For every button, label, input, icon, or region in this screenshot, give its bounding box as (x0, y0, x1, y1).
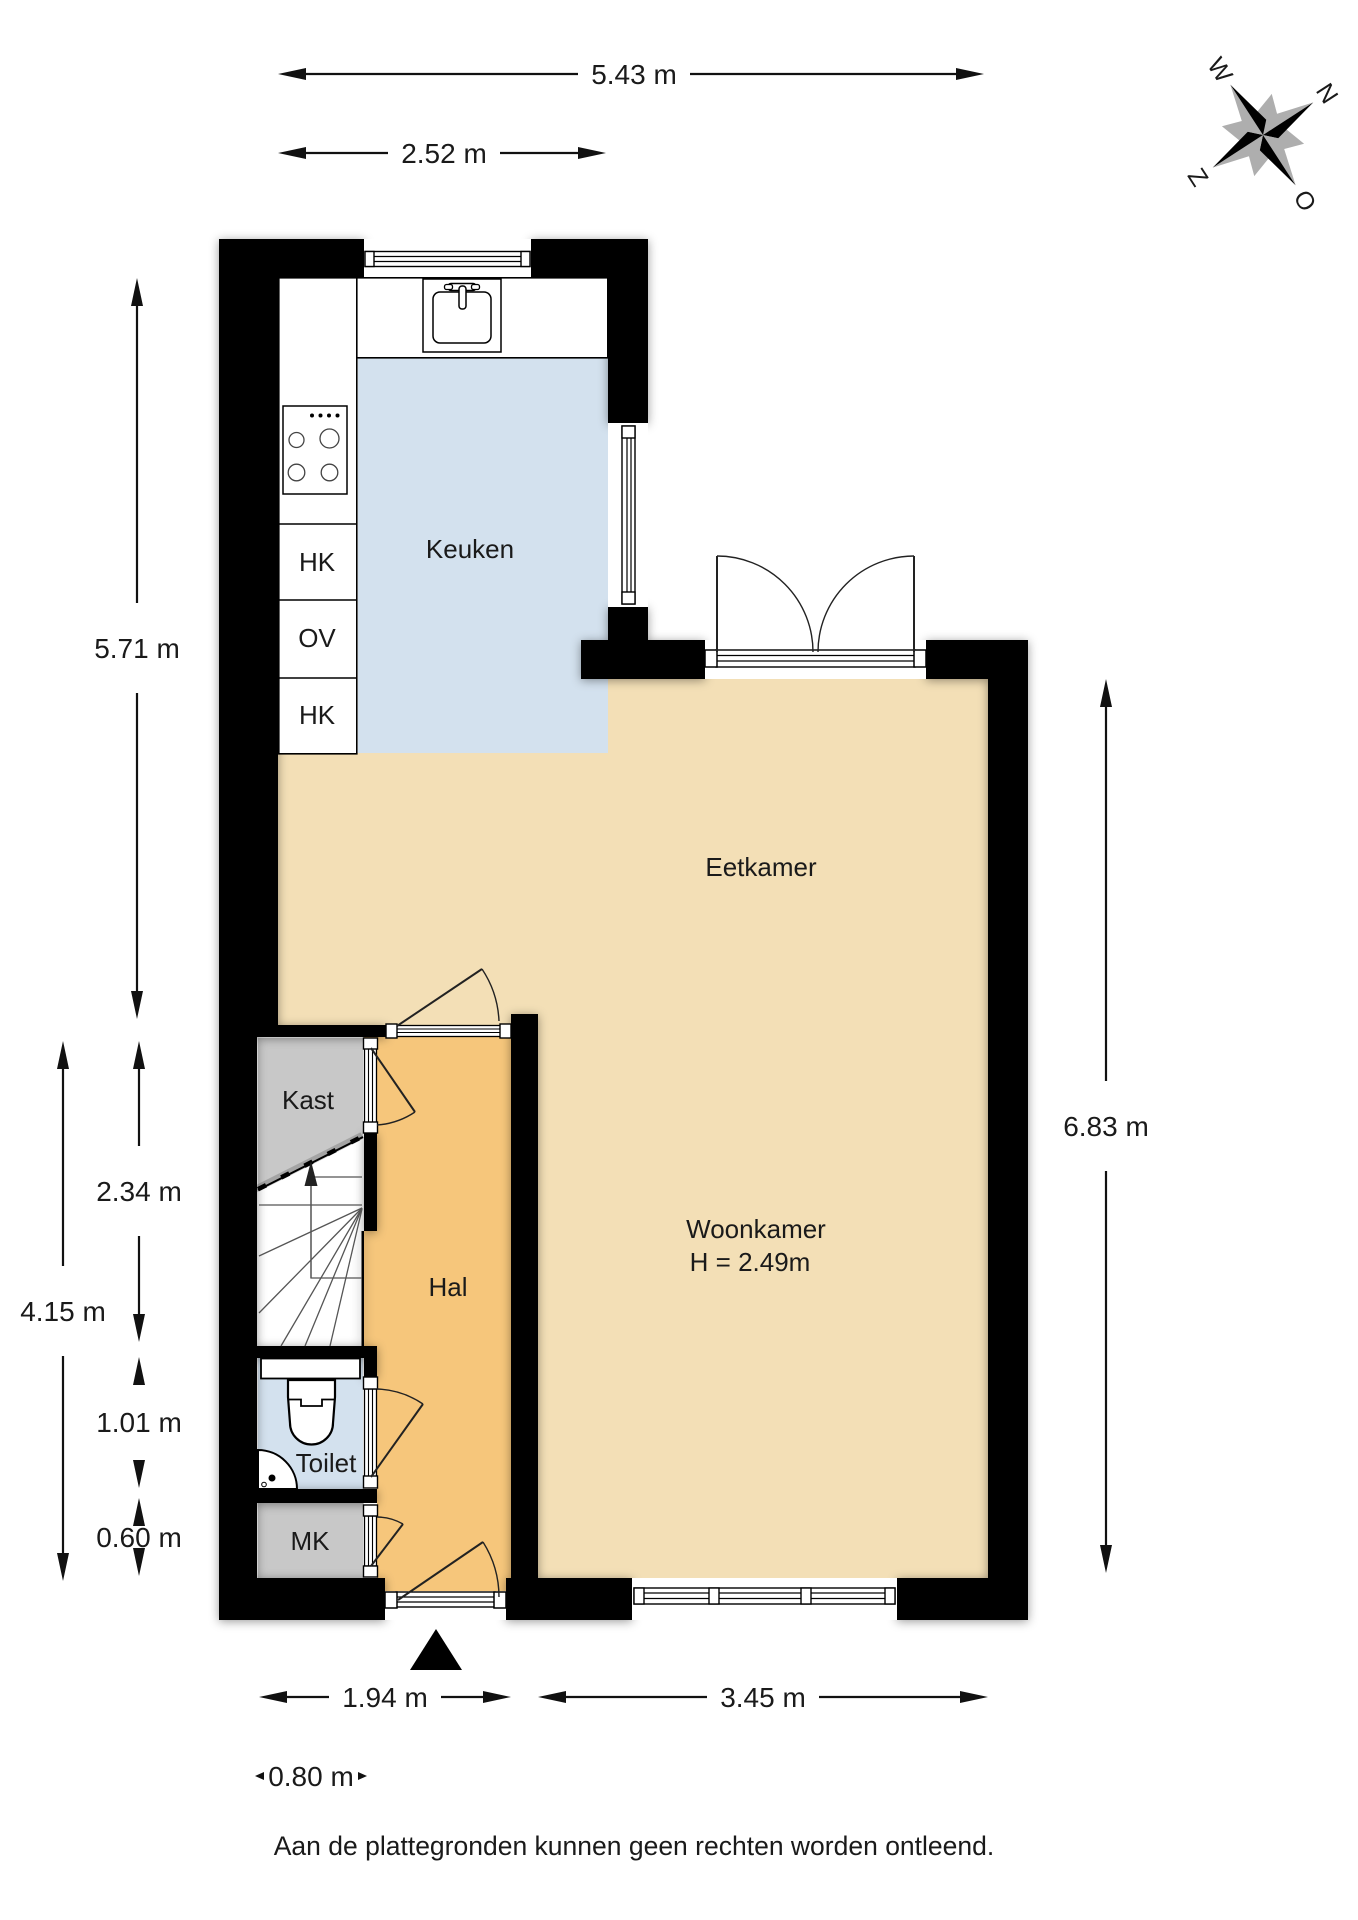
svg-text:Hal: Hal (428, 1272, 467, 1302)
svg-text:0.60 m: 0.60 m (96, 1522, 182, 1553)
svg-text:Toilet: Toilet (296, 1448, 357, 1478)
svg-text:6.83 m: 6.83 m (1063, 1111, 1149, 1142)
svg-text:Woonkamer: Woonkamer (686, 1214, 826, 1244)
svg-text:H = 2.49m: H = 2.49m (690, 1247, 811, 1277)
svg-text:3.45 m: 3.45 m (720, 1682, 806, 1713)
svg-text:Eetkamer: Eetkamer (705, 852, 817, 882)
svg-text:5.43 m: 5.43 m (591, 59, 677, 90)
svg-text:HK: HK (299, 547, 336, 577)
svg-text:1.01 m: 1.01 m (96, 1407, 182, 1438)
svg-text:HK: HK (299, 700, 336, 730)
svg-text:2.34 m: 2.34 m (96, 1176, 182, 1207)
svg-text:5.71 m: 5.71 m (94, 633, 180, 664)
svg-text:4.15 m: 4.15 m (20, 1296, 106, 1327)
svg-text:Aan de plattegronden kunnen ge: Aan de plattegronden kunnen geen rechten… (274, 1831, 994, 1861)
svg-text:Keuken: Keuken (426, 534, 514, 564)
svg-text:0.80 m: 0.80 m (268, 1761, 354, 1792)
svg-text:1.94 m: 1.94 m (342, 1682, 428, 1713)
svg-text:OV: OV (298, 623, 336, 653)
svg-text:Kast: Kast (282, 1085, 335, 1115)
svg-text:MK: MK (291, 1526, 331, 1556)
svg-text:2.52 m: 2.52 m (401, 138, 487, 169)
